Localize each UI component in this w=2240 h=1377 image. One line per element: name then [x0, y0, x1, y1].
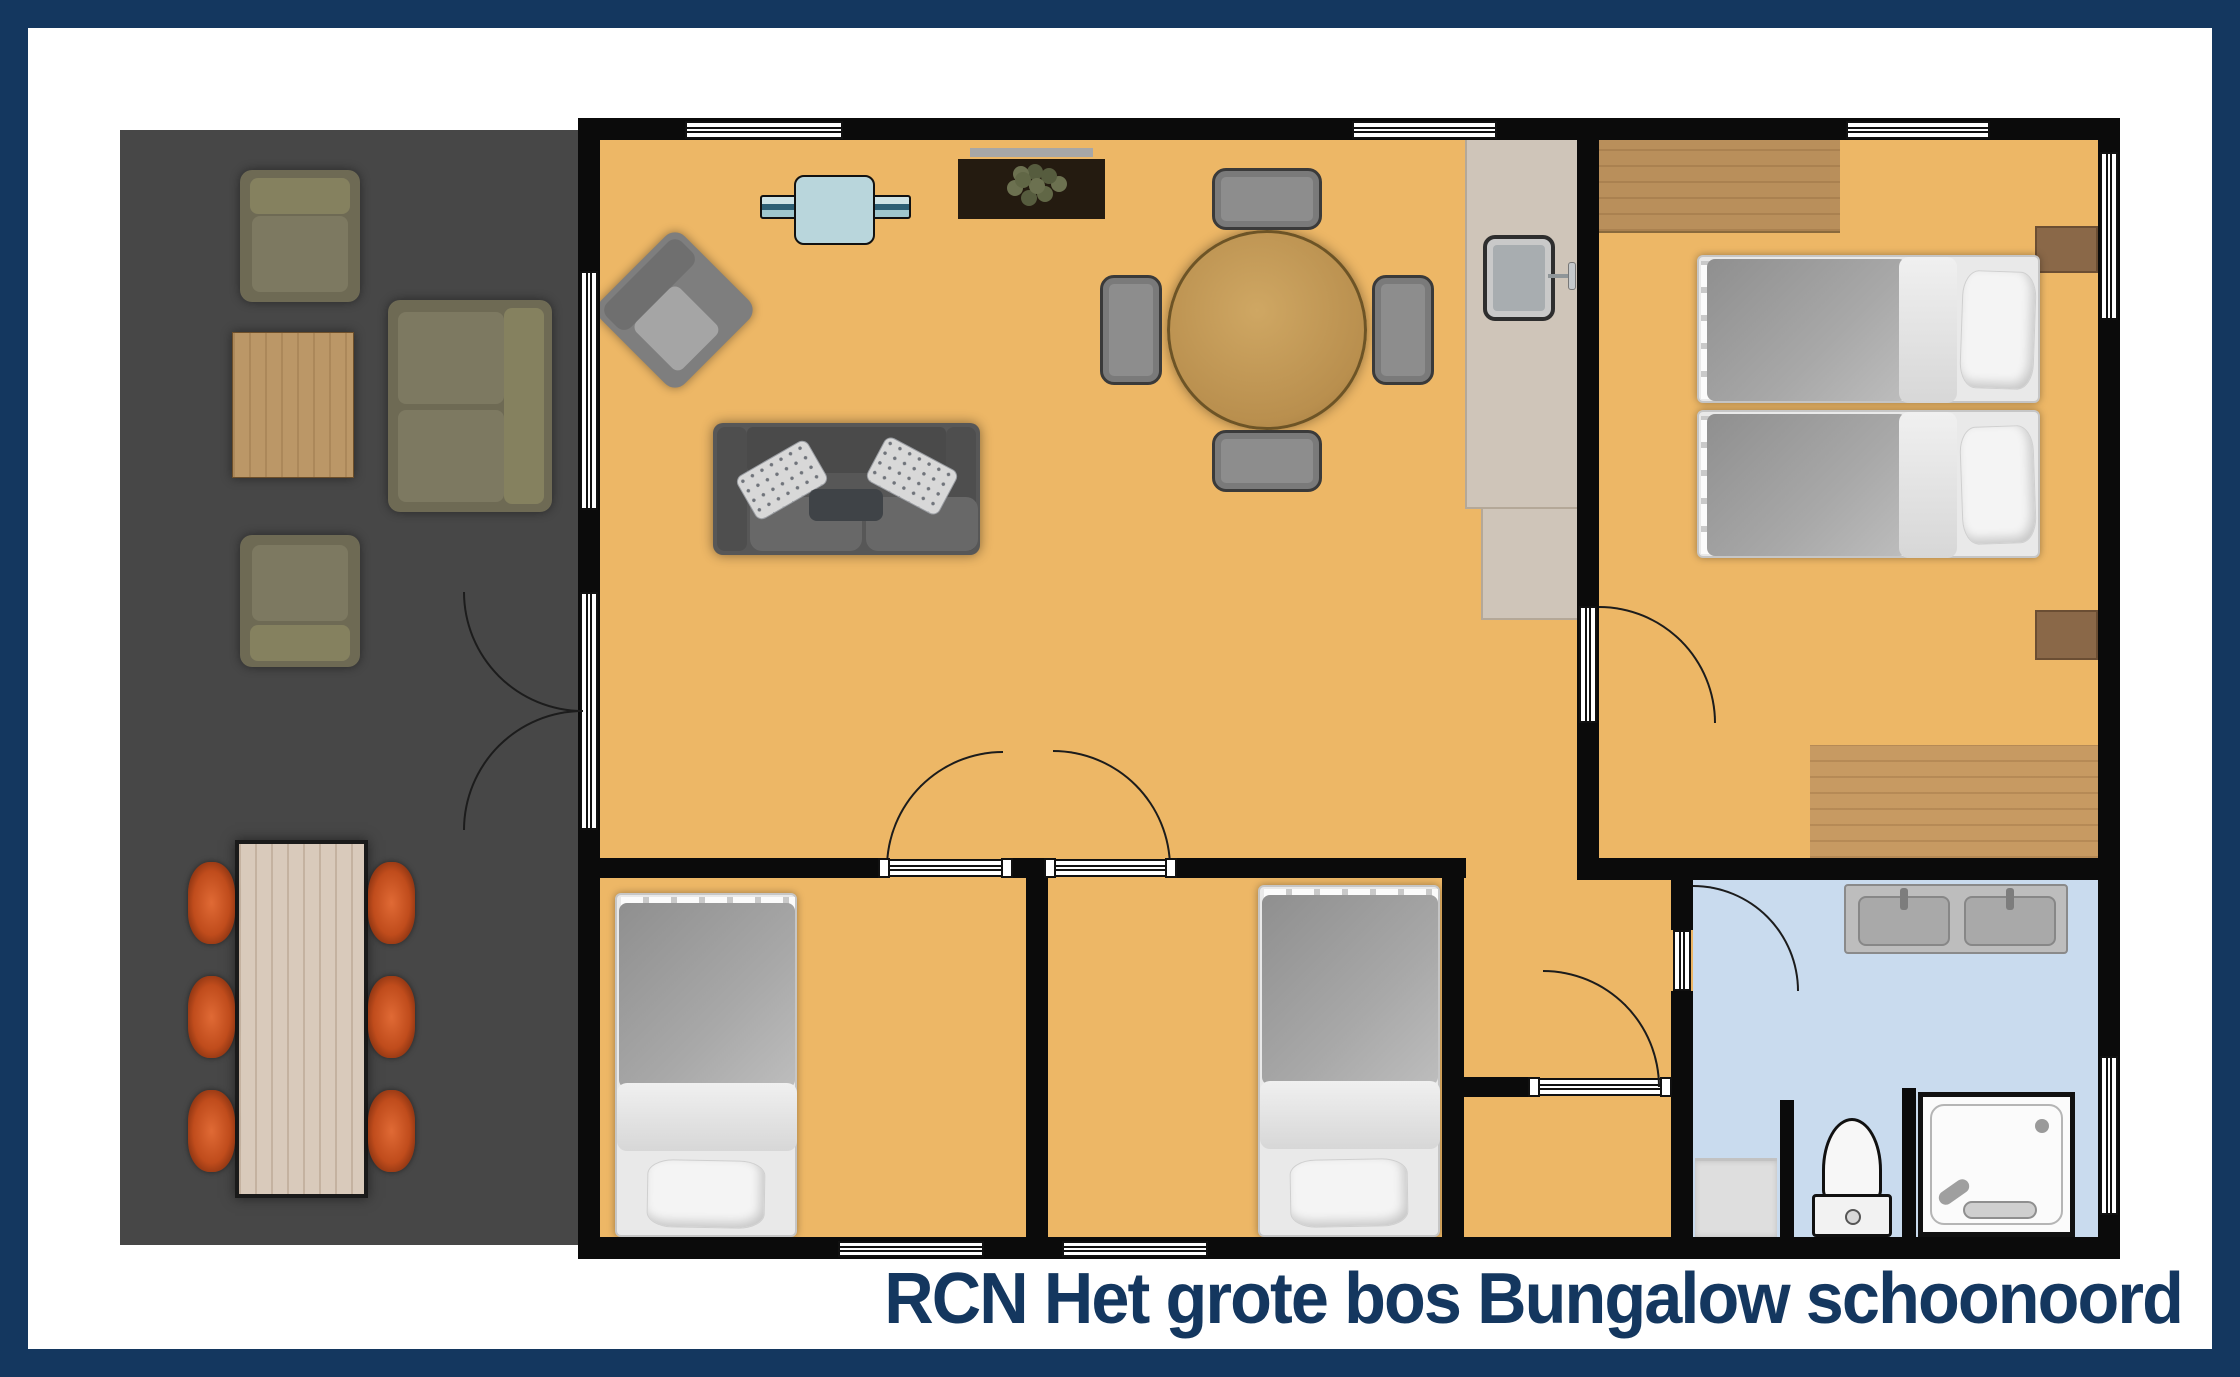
bed-pillow — [1289, 1158, 1408, 1228]
shower — [1918, 1092, 2075, 1237]
terrace-chair-3 — [188, 1090, 235, 1172]
bed-fold — [1260, 1081, 1440, 1149]
bed-pillow — [1959, 270, 2037, 391]
door-jamb — [1528, 1077, 1540, 1097]
nightstand-bottom — [2035, 610, 2098, 660]
window-right-bedroom — [2100, 152, 2118, 320]
sink-faucet-handle — [1568, 262, 1576, 290]
dining-chair-right — [1372, 275, 1434, 385]
door-jamb — [1044, 858, 1056, 878]
bed-pillow — [1959, 425, 2037, 546]
nightstand-top — [2035, 226, 2098, 273]
terrace-armchair-bottom — [240, 535, 360, 667]
window-top-bedroom — [1846, 121, 1990, 139]
bathroom-wall-stub-1 — [1780, 1100, 1794, 1237]
dining-table-round — [1167, 230, 1367, 430]
bedroom-wood-mat — [1810, 745, 2098, 858]
bed-fold — [1899, 412, 1957, 558]
door-jamb — [878, 858, 890, 878]
wall-bathroom-upper — [1671, 880, 1693, 930]
terrace-chair-4 — [368, 862, 415, 944]
bathroom-wall-stub-2 — [1902, 1088, 1916, 1237]
bed-right-1 — [1697, 255, 2040, 403]
terrace-chair-6 — [368, 1090, 415, 1172]
bed-duvet — [619, 903, 795, 1088]
wall-bedroom-bathroom-divider — [1599, 858, 2098, 880]
wall-bedroom2-hallway — [1442, 878, 1464, 1237]
wall-bathroom-lower — [1671, 991, 1693, 1237]
vanity-faucet-left — [1900, 888, 1908, 910]
sofa-seat-2 — [398, 410, 504, 502]
shower-drain — [2035, 1119, 2049, 1133]
bed-right-2 — [1697, 410, 2040, 558]
terrace-armchair-top — [240, 170, 360, 302]
window-bottom-bedroom2 — [1062, 1241, 1208, 1257]
wardrobe — [1597, 140, 1840, 233]
armchair-back — [250, 625, 350, 661]
terrace-coffee-table — [232, 332, 354, 478]
sideboard — [958, 159, 1105, 219]
terrace-sofa — [388, 300, 552, 512]
wall-shelf — [970, 148, 1093, 157]
bed-duvet — [1262, 895, 1438, 1085]
kitchen-counter — [1465, 140, 1577, 509]
wall-kitchen-bedroom — [1577, 140, 1599, 880]
tv-stand — [794, 175, 875, 245]
window-right-bathroom — [2100, 1056, 2118, 1215]
window-top-kitchen — [1352, 121, 1497, 139]
shower-hose-icon — [1963, 1201, 2037, 1219]
bed-fold — [617, 1083, 797, 1151]
dining-chair-left — [1100, 275, 1162, 385]
bed-bottom-left — [615, 893, 797, 1237]
armchair-back — [250, 178, 350, 214]
wall-bedroom1-bedroom2 — [1026, 878, 1048, 1237]
bathroom-door-threshold — [1673, 930, 1691, 991]
sink-basin — [1493, 245, 1545, 311]
wall-living-bedrooms-a — [600, 858, 886, 878]
window-bottom-bedroom1 — [838, 1241, 984, 1257]
kitchen-sink — [1483, 235, 1555, 321]
door-jamb — [1660, 1077, 1672, 1097]
dining-chair-bottom — [1212, 430, 1322, 492]
wall-living-bedrooms-b — [1171, 858, 1466, 878]
armchair-cushion — [252, 545, 348, 621]
terrace-chair-1 — [188, 862, 235, 944]
kitchen-counter-lower — [1481, 509, 1577, 620]
vanity-double-sink — [1844, 884, 2068, 954]
toilet-tank — [1812, 1194, 1892, 1237]
bed-duvet — [1707, 259, 1907, 401]
living-sofa — [713, 423, 980, 555]
door-jamb — [1001, 858, 1013, 878]
plant-icon — [1015, 172, 1031, 188]
window-top-living — [685, 121, 843, 139]
vanity-faucet-right — [2006, 888, 2014, 910]
armchair-cushion — [252, 216, 348, 292]
bed-duvet — [1707, 414, 1907, 556]
bed-pillow — [646, 1159, 765, 1229]
terrace-chair-2 — [188, 976, 235, 1058]
wall-hallway-closet — [1442, 1077, 1536, 1097]
sofa-back — [504, 308, 544, 504]
wall-bottom — [578, 1237, 2120, 1259]
floorplan-image: RCN Het grote bos Bungalow schoonoord — [0, 0, 2240, 1377]
master-bedroom-door-threshold — [1579, 606, 1597, 723]
page-title: RCN Het grote bos Bungalow schoonoord — [884, 1258, 2182, 1340]
sofa-seat-1 — [398, 312, 504, 404]
door-jamb — [1165, 858, 1177, 878]
dining-chair-top — [1212, 168, 1322, 230]
bed-fold — [1899, 257, 1957, 403]
sofa-pillow-center — [809, 489, 883, 521]
bathroom-cabinet — [1695, 1158, 1777, 1237]
terrace-dining-table — [235, 840, 368, 1198]
toilet-flush-button — [1845, 1209, 1861, 1225]
bed-bottom-middle — [1258, 885, 1440, 1237]
window-left-living — [580, 271, 598, 510]
terrace-chair-5 — [368, 976, 415, 1058]
